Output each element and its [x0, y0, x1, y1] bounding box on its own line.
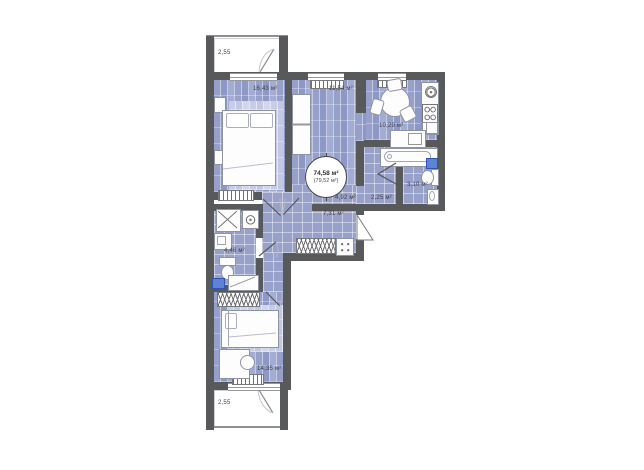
wardrobe-icon [292, 94, 311, 155]
appliance-door-icon [408, 133, 422, 145]
pillow-icon [226, 113, 249, 128]
room-area-label: 16,43 м² [253, 86, 277, 92]
bed-headboard-icon [228, 310, 229, 346]
sink-icon [425, 86, 437, 98]
room-area-label: 4,92 м² [335, 195, 356, 201]
balcony-top-wall-right [279, 36, 288, 72]
wall-outer-left [206, 72, 214, 390]
drain-icon [212, 278, 225, 289]
room-area-label: 2,25 м² [371, 195, 392, 201]
balcony-bottom-railing [206, 426, 288, 428]
pillow-icon [225, 313, 237, 329]
stove-icon [422, 104, 438, 123]
corridor-passage-floor [356, 186, 364, 204]
balcony-area-label: 2,55 [218, 50, 230, 56]
radiator-bedroom-top [218, 190, 254, 201]
room-area-label: 14,35 м² [257, 366, 281, 372]
balcony-area-label: 2,55 [218, 400, 230, 406]
shoe-cabinet-icon [336, 238, 354, 256]
wardrobe-icon [217, 292, 260, 307]
water-heater-icon [228, 275, 259, 291]
bathtub-drain-icon [387, 154, 392, 159]
desk-chair-icon [240, 355, 255, 370]
balcony-bottom-floor [214, 390, 282, 428]
balcony-top-railing [206, 35, 288, 37]
floor-plan: 16,43 м² 11,54 м² 10,29 м² 3,10 м² 2,25 … [0, 0, 644, 470]
room-area-label: 4,46 м² [224, 248, 245, 254]
balcony-top-floor [214, 38, 281, 74]
entrance-door [357, 215, 373, 240]
window-bedroom-top [230, 73, 277, 81]
washer-valve-icon [426, 158, 438, 169]
room-area-label: 7,31 м² [323, 211, 344, 217]
wall-kitchen-partition-upper [356, 80, 366, 113]
wall-bedroom-bottom-right [283, 253, 291, 390]
shower-tray-icon [216, 209, 241, 232]
balcony-top-wall-left [206, 36, 214, 72]
washing-machine-icon [242, 210, 259, 229]
wall-bathroom-right-west [396, 166, 403, 204]
wall-partition-bedrooms [285, 80, 292, 192]
wall-kitchen-partition-lower [356, 141, 364, 186]
balcony-bottom-wall-right [280, 390, 288, 430]
pillow-icon [250, 113, 273, 128]
room-area-label: 11,54 м² [329, 86, 353, 92]
total-area-primary: 74,58 м² [313, 170, 338, 177]
balcony-bottom-wall-left [206, 390, 214, 430]
hall-wardrobe-icon [296, 238, 336, 254]
hallway-strip-floor [263, 253, 283, 292]
kitchen-floor-passage [356, 113, 366, 141]
chair-icon [386, 78, 403, 92]
total-area-badge: 74,58 м² (79,52 м²) [305, 156, 347, 198]
washbasin-bowl-icon [217, 236, 226, 245]
room-area-label: 3,10 м² [407, 182, 428, 188]
wall-entrance-top [356, 211, 364, 215]
room-area-label: 10,29 м² [379, 123, 403, 129]
wall-wing-south [312, 204, 445, 211]
total-area-secondary: (79,52 м²) [314, 178, 339, 184]
washbasin-bowl-icon [429, 191, 435, 201]
